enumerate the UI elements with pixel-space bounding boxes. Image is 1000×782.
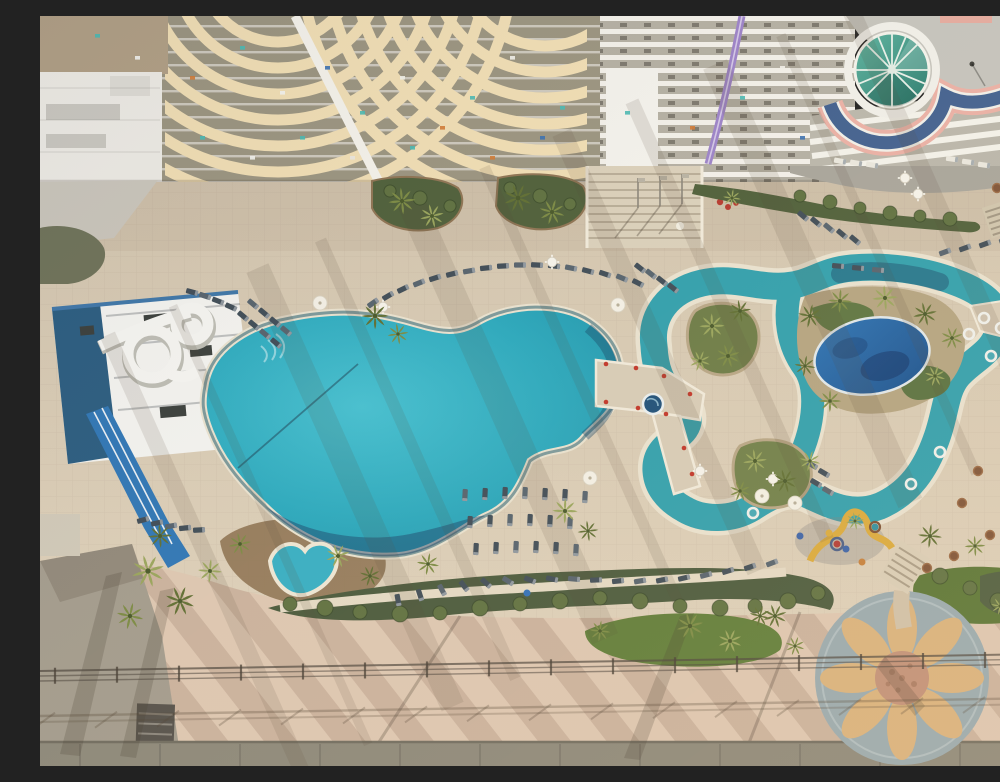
scene-canvas (40, 16, 1000, 766)
atmospheric-light-overlay (40, 16, 1000, 766)
resort-aerial-photo (40, 16, 1000, 766)
